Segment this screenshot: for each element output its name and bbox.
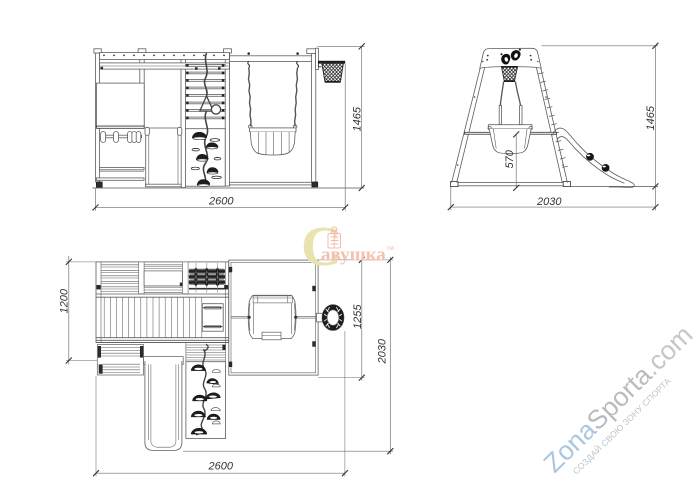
svg-text:2030: 2030: [536, 196, 562, 208]
svg-text:2030: 2030: [377, 338, 389, 364]
svg-text:2600: 2600: [208, 196, 234, 208]
svg-text:1465: 1465: [351, 106, 363, 131]
svg-text:2600: 2600: [208, 461, 234, 473]
svg-text:1200: 1200: [58, 288, 70, 313]
svg-text:тм: тм: [387, 245, 394, 252]
svg-text:авушка: авушка: [321, 245, 386, 266]
svg-text:ZonaSporta.com: ZonaSporta.com: [538, 320, 699, 479]
svg-text:1255: 1255: [352, 304, 364, 329]
svg-text:1465: 1465: [645, 105, 657, 130]
svg-text:570: 570: [504, 149, 516, 168]
